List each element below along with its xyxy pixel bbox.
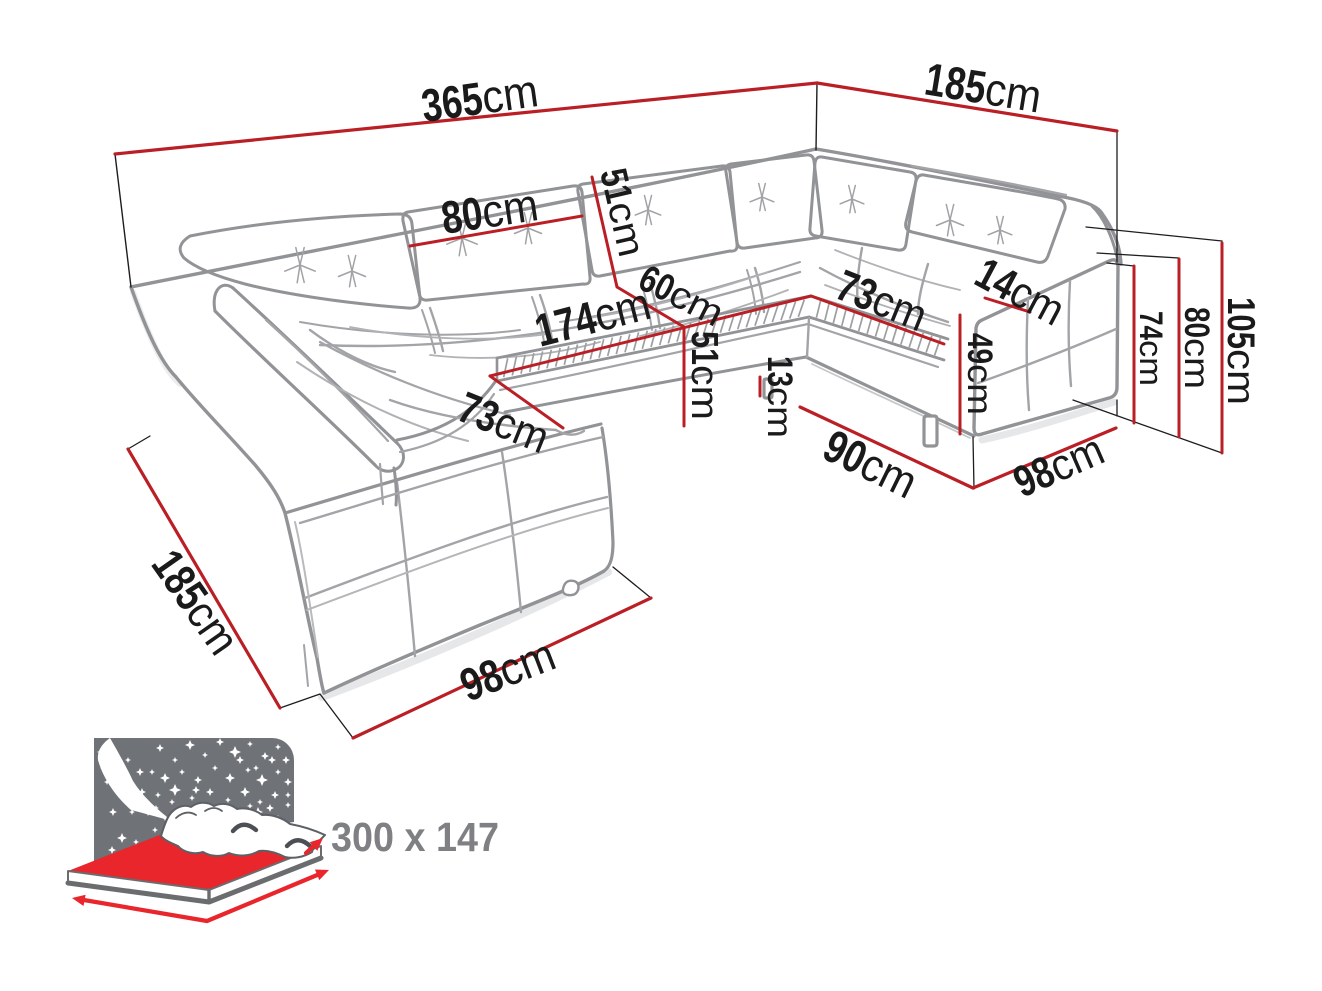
svg-text:300 x 147: 300 x 147 bbox=[331, 814, 499, 860]
svg-text:74cm: 74cm bbox=[1133, 311, 1169, 386]
svg-text:105cm: 105cm bbox=[1219, 297, 1262, 405]
svg-text:80cm: 80cm bbox=[1177, 307, 1216, 389]
svg-text:49cm: 49cm bbox=[960, 333, 999, 415]
svg-text:51cm: 51cm bbox=[683, 331, 725, 420]
svg-text:13cm: 13cm bbox=[760, 356, 799, 438]
